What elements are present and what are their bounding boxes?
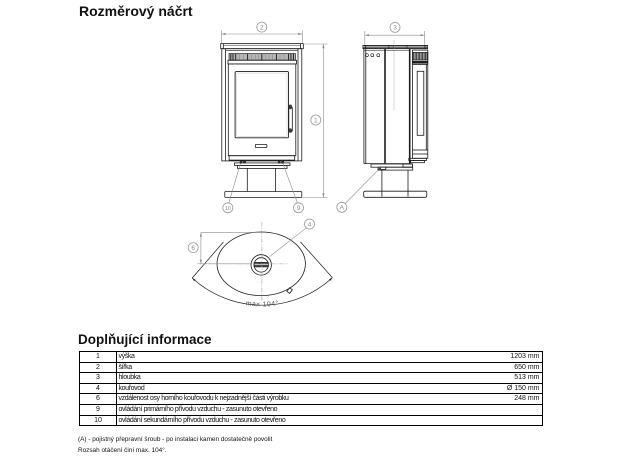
svg-text:10: 10 [225,206,231,212]
svg-text:3: 3 [393,25,397,32]
svg-text:1: 1 [314,117,318,124]
svg-text:A: A [340,205,345,212]
svg-text:4: 4 [308,221,312,228]
svg-text:6: 6 [191,245,195,252]
svg-text:max 104°: max 104° [245,299,279,308]
svg-text:9: 9 [297,205,301,212]
svg-text:2: 2 [260,24,264,31]
